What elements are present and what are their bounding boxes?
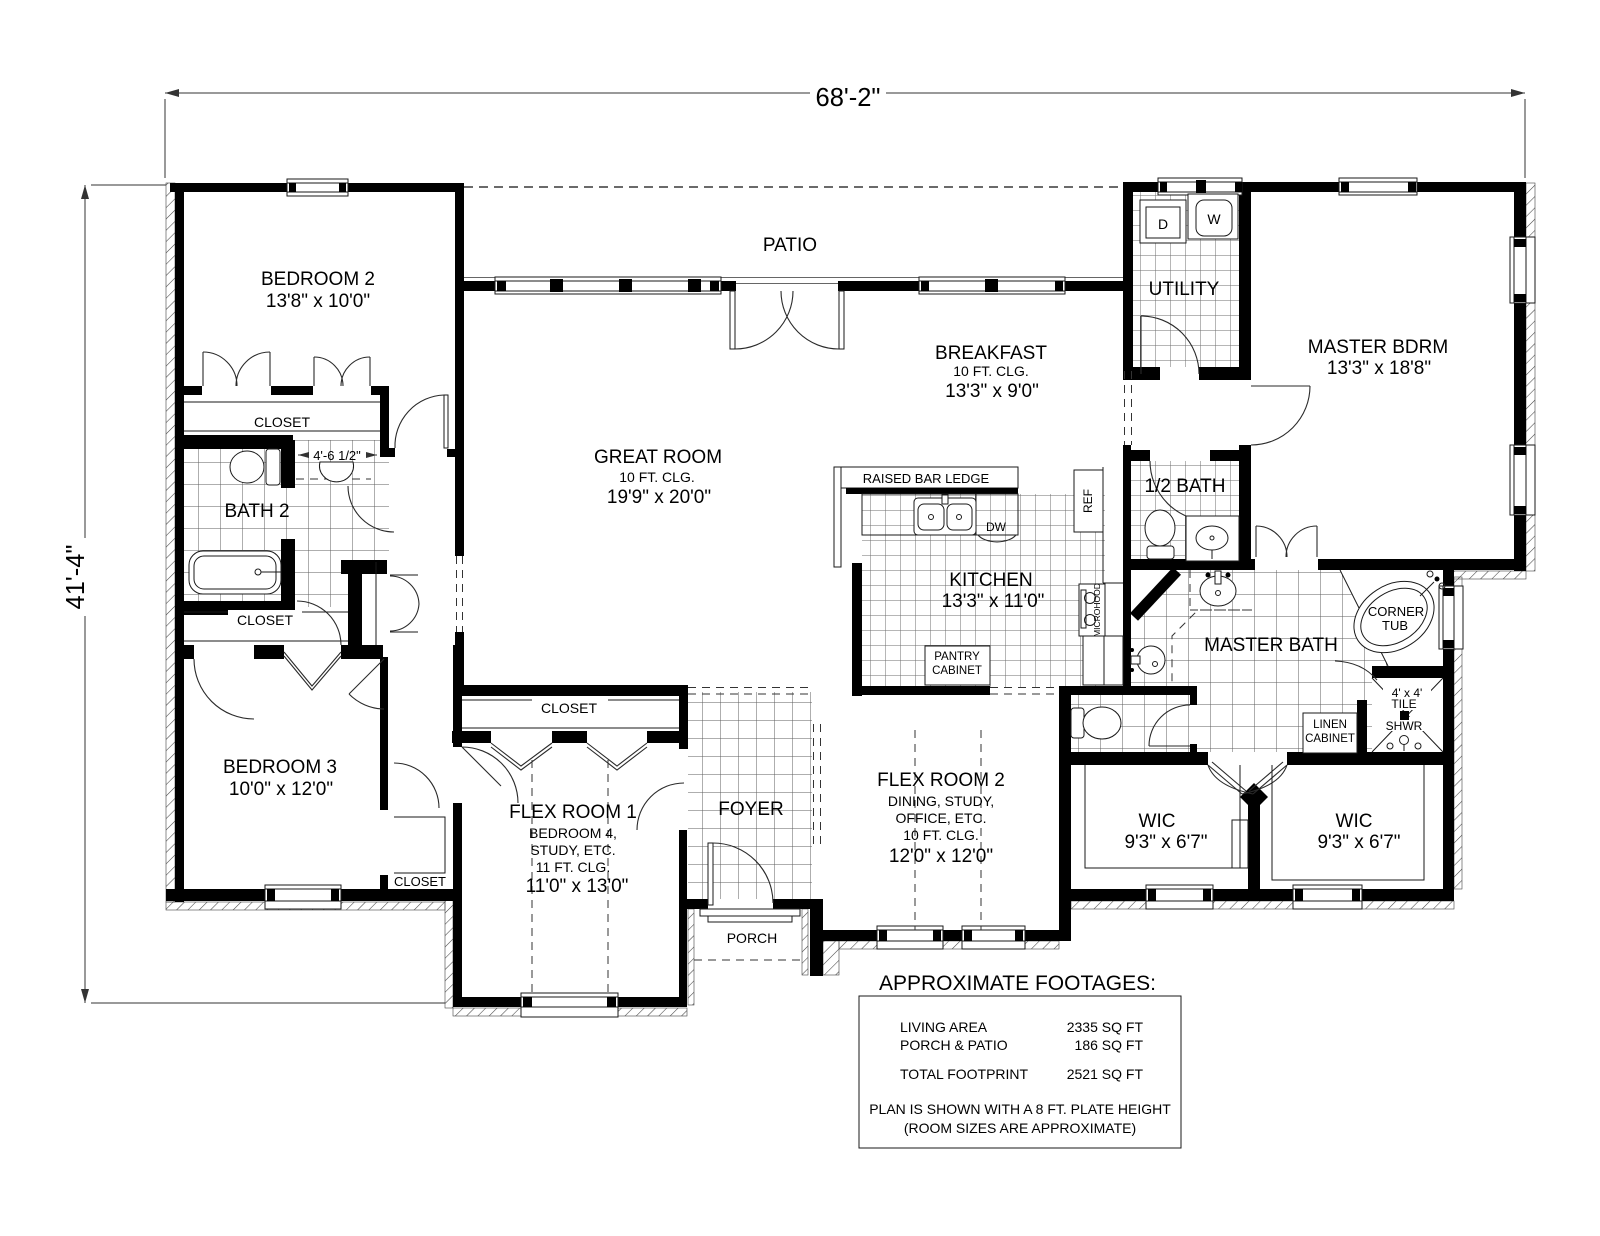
svg-text:MASTER BDRM: MASTER BDRM (1308, 337, 1448, 358)
svg-text:PORCH & PATIO: PORCH & PATIO (900, 1037, 1008, 1053)
svg-text:BEDROOM 2: BEDROOM 2 (261, 269, 375, 290)
svg-text:11 FT. CLG.: 11 FT. CLG. (536, 859, 610, 875)
svg-text:W: W (1207, 211, 1221, 227)
svg-text:FLEX ROOM 1: FLEX ROOM 1 (509, 802, 637, 823)
svg-text:BEDROOM 3: BEDROOM 3 (223, 757, 337, 778)
svg-text:13'3" x 18'8": 13'3" x 18'8" (1327, 358, 1431, 379)
svg-text:CABINET: CABINET (1305, 733, 1355, 745)
svg-text:9'3" x 6'7": 9'3" x 6'7" (1124, 832, 1207, 853)
svg-text:PATIO: PATIO (763, 235, 817, 256)
svg-text:10 FT. CLG.: 10 FT. CLG. (903, 827, 978, 843)
svg-text:TOTAL FOOTPRINT: TOTAL FOOTPRINT (900, 1066, 1029, 1082)
svg-text:2335 SQ FT: 2335 SQ FT (1067, 1019, 1144, 1035)
svg-text:10'0" x 12'0": 10'0" x 12'0" (229, 779, 333, 800)
svg-text:41'-4": 41'-4" (62, 545, 90, 610)
svg-text:186 SQ FT: 186 SQ FT (1075, 1037, 1144, 1053)
svg-text:FOYER: FOYER (718, 799, 783, 820)
svg-text:19'9" x 20'0": 19'9" x 20'0" (607, 487, 711, 508)
svg-text:RAISED BAR LEDGE: RAISED BAR LEDGE (863, 471, 990, 486)
svg-text:CORNER: CORNER (1368, 604, 1424, 619)
svg-text:PANTRY: PANTRY (934, 651, 980, 663)
svg-text:CLOSET: CLOSET (237, 612, 293, 628)
svg-text:DW: DW (986, 520, 1007, 534)
svg-text:STUDY, ETC.: STUDY, ETC. (530, 842, 615, 858)
svg-text:FLEX ROOM 2: FLEX ROOM 2 (877, 770, 1005, 791)
svg-text:(ROOM SIZES ARE APPROXIMATE): (ROOM SIZES ARE APPROXIMATE) (904, 1120, 1136, 1136)
svg-text:LINEN: LINEN (1313, 719, 1347, 731)
svg-text:D: D (1158, 216, 1168, 232)
svg-text:DINING, STUDY,: DINING, STUDY, (888, 793, 994, 809)
svg-text:WIC: WIC (1336, 811, 1373, 832)
svg-text:TUB: TUB (1382, 618, 1408, 633)
svg-text:10 FT. CLG.: 10 FT. CLG. (953, 363, 1028, 379)
svg-text:REF: REF (1081, 489, 1095, 513)
svg-text:12'0" x 12'0": 12'0" x 12'0" (889, 846, 993, 867)
svg-text:CLOSET: CLOSET (394, 874, 446, 889)
svg-text:WIC: WIC (1139, 811, 1176, 832)
svg-text:PLAN IS SHOWN WITH A 8 FT. PLA: PLAN IS SHOWN WITH A 8 FT. PLATE HEIGHT (869, 1101, 1171, 1117)
svg-text:68'-2": 68'-2" (816, 84, 881, 112)
svg-text:MASTER BATH: MASTER BATH (1204, 635, 1338, 656)
svg-text:2521 SQ FT: 2521 SQ FT (1067, 1066, 1144, 1082)
svg-text:9'3" x 6'7": 9'3" x 6'7" (1317, 832, 1400, 853)
svg-text:BATH 2: BATH 2 (224, 501, 289, 522)
svg-text:SHWR: SHWR (1386, 719, 1423, 733)
svg-text:CLOSET: CLOSET (541, 700, 597, 716)
svg-text:1/2 BATH: 1/2 BATH (1145, 476, 1226, 497)
svg-text:CABINET: CABINET (932, 665, 982, 677)
svg-text:13'8" x 10'0": 13'8" x 10'0" (266, 291, 370, 312)
svg-text:LIVING AREA: LIVING AREA (900, 1019, 988, 1035)
svg-text:PORCH: PORCH (727, 930, 778, 946)
svg-text:BREAKFAST: BREAKFAST (935, 343, 1047, 364)
svg-text:OFFICE, ETC.: OFFICE, ETC. (896, 810, 987, 826)
svg-text:GREAT ROOM: GREAT ROOM (594, 447, 722, 468)
svg-text:13'3" x 11'0": 13'3" x 11'0" (942, 591, 1045, 612)
svg-text:MICROHOOD: MICROHOOD (1092, 583, 1102, 637)
svg-text:CLOSET: CLOSET (254, 414, 310, 430)
svg-text:11'0" x 13'0": 11'0" x 13'0" (526, 876, 629, 897)
svg-text:TILE: TILE (1391, 697, 1416, 711)
svg-text:10 FT. CLG.: 10 FT. CLG. (619, 469, 694, 485)
svg-text:UTILITY: UTILITY (1149, 279, 1220, 300)
svg-text:4'-6 1/2": 4'-6 1/2" (313, 448, 361, 463)
svg-text:BEDROOM 4,: BEDROOM 4, (529, 825, 617, 841)
svg-text:13'3" x 9'0": 13'3" x 9'0" (945, 381, 1039, 402)
svg-text:KITCHEN: KITCHEN (949, 570, 1032, 591)
svg-text:APPROXIMATE FOOTAGES:: APPROXIMATE FOOTAGES: (879, 972, 1156, 995)
